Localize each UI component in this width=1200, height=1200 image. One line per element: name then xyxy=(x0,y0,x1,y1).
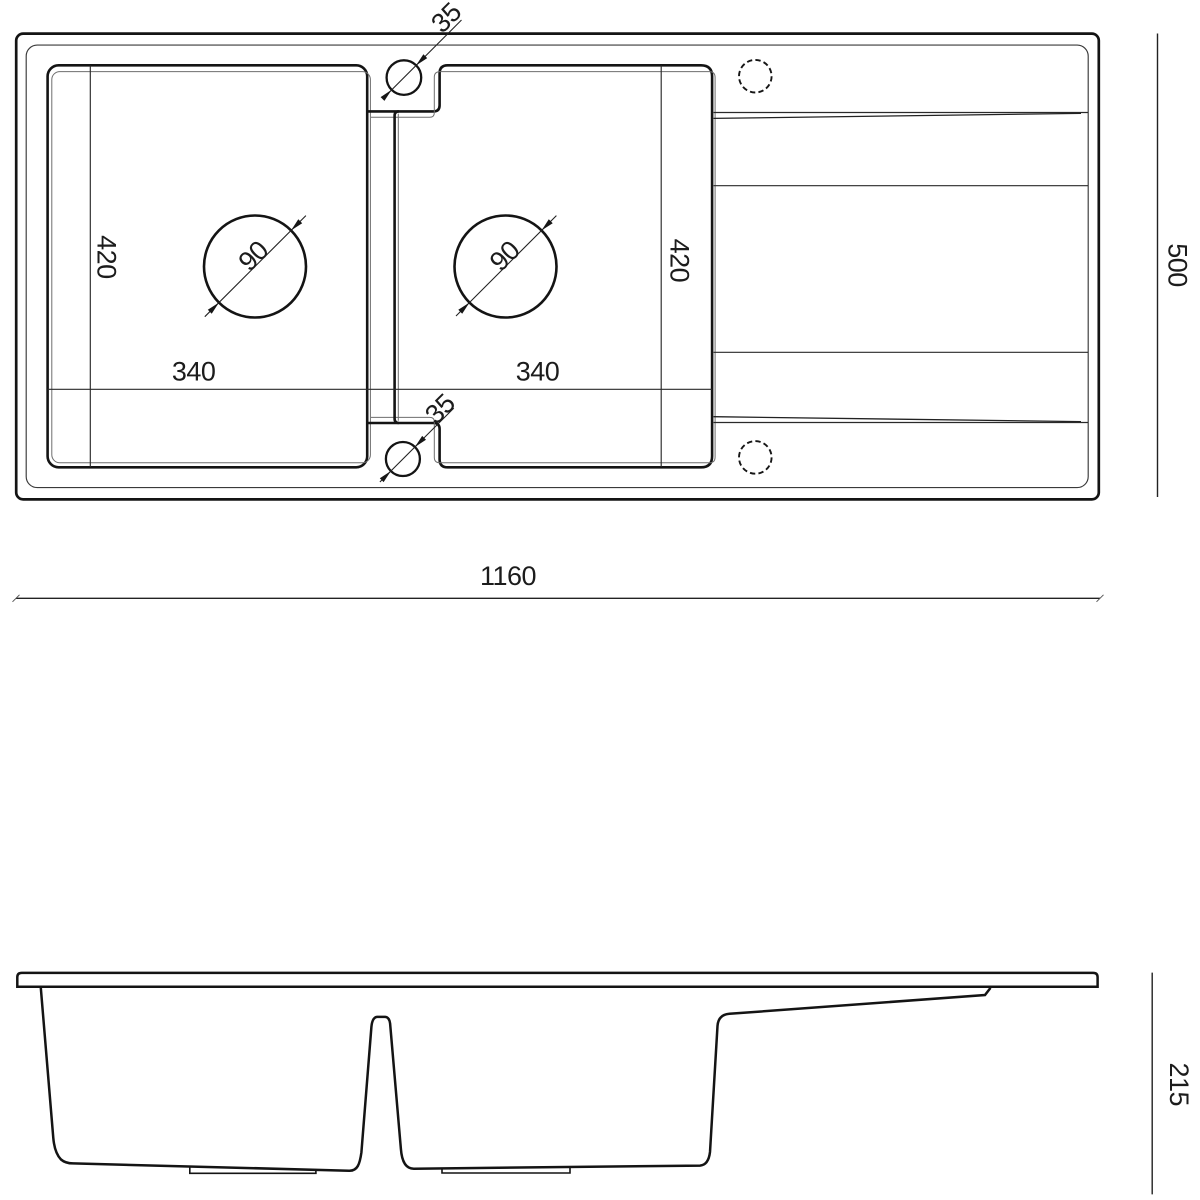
svg-text:215: 215 xyxy=(1164,1063,1194,1107)
svg-text:420: 420 xyxy=(91,235,121,279)
svg-text:500: 500 xyxy=(1163,243,1193,287)
svg-text:340: 340 xyxy=(172,357,216,387)
svg-text:340: 340 xyxy=(516,357,560,387)
svg-text:420: 420 xyxy=(665,239,695,283)
svg-text:1160: 1160 xyxy=(480,561,536,591)
